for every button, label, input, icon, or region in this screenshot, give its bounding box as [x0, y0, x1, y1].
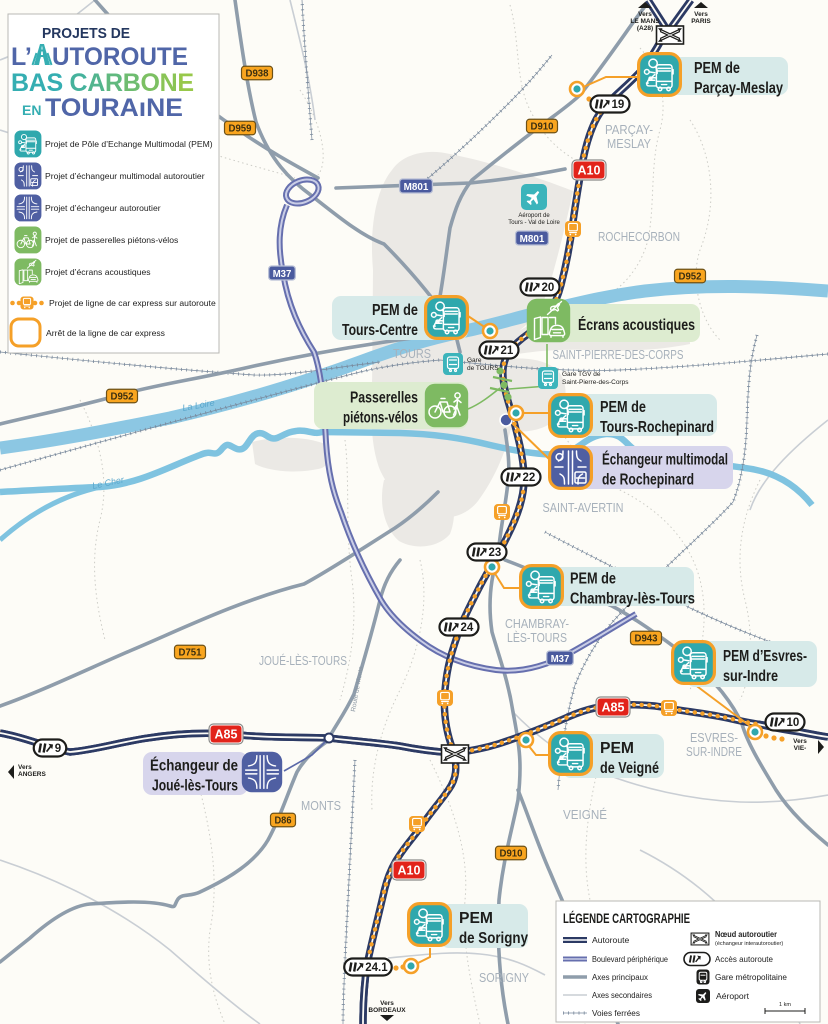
svg-text:Écrans acoustiques: Écrans acoustiques: [578, 315, 695, 334]
svg-text:Voies ferrées: Voies ferrées: [592, 1008, 640, 1018]
svg-text:Axes secondaires: Axes secondaires: [592, 990, 652, 1000]
svg-text:ESVRES-: ESVRES-: [690, 730, 738, 745]
svg-text:sur-Indre: sur-Indre: [723, 668, 778, 685]
svg-text:Projet de ligne de car express: Projet de ligne de car express sur autor…: [49, 298, 216, 308]
svg-text:EN: EN: [22, 102, 41, 118]
svg-text:Projet d’échangeur autoroutier: Projet d’échangeur autoroutier: [45, 203, 161, 213]
svg-text:Échangeur de: Échangeur de: [150, 756, 238, 775]
svg-text:PEM: PEM: [600, 740, 634, 757]
svg-text:Accès autoroute: Accès autoroute: [715, 954, 773, 964]
svg-text:D952: D952: [679, 272, 702, 283]
svg-text:de Sorigny: de Sorigny: [459, 930, 528, 947]
svg-text:A85: A85: [602, 701, 625, 715]
svg-text:D959: D959: [229, 124, 252, 135]
svg-text:Tours-Centre: Tours-Centre: [342, 322, 418, 339]
svg-text:23: 23: [489, 547, 502, 559]
svg-text:PROJETS DE: PROJETS DE: [42, 25, 130, 42]
svg-text:PARIS: PARIS: [691, 18, 711, 25]
svg-text:D910: D910: [531, 122, 554, 133]
svg-text:TOURS: TOURS: [393, 346, 431, 361]
svg-text:Gare métropolitaine: Gare métropolitaine: [715, 972, 787, 982]
svg-text:BORDEAUX: BORDEAUX: [368, 1007, 406, 1014]
svg-text:ANGERS: ANGERS: [18, 771, 46, 778]
svg-text:PEM de: PEM de: [600, 399, 646, 416]
svg-text:20: 20: [542, 282, 555, 294]
svg-text:de Rochepinard: de Rochepinard: [602, 472, 694, 489]
svg-text:PEM de: PEM de: [372, 302, 418, 319]
svg-text:21: 21: [501, 345, 514, 357]
svg-text:A85: A85: [215, 728, 238, 742]
svg-text:A10: A10: [578, 164, 601, 178]
svg-text:Arrêt de la ligne de car expre: Arrêt de la ligne de car express: [46, 328, 165, 338]
svg-text:(échangeur interautoroutier): (échangeur interautoroutier): [715, 941, 783, 947]
svg-text:LÈS-TOURS: LÈS-TOURS: [507, 630, 567, 645]
svg-text:M37: M37: [273, 269, 292, 280]
svg-text:piétons-vélos: piétons-vélos: [343, 410, 418, 427]
svg-text:24.1: 24.1: [365, 962, 388, 974]
svg-text:MESLAY: MESLAY: [607, 136, 651, 151]
svg-text:BAS CARBONE: BAS CARBONE: [11, 69, 194, 97]
svg-text:LE MANS: LE MANS: [630, 18, 660, 25]
svg-text:M801: M801: [404, 182, 429, 193]
svg-text:PEM de: PEM de: [570, 571, 616, 588]
svg-text:de TOURS: de TOURS: [467, 365, 499, 372]
svg-text:Vers: Vers: [380, 1000, 394, 1007]
svg-text:TOURAıNE: TOURAıNE: [45, 94, 183, 122]
svg-text:Vers: Vers: [694, 11, 708, 18]
svg-text:(A28): (A28): [637, 25, 653, 32]
svg-text:LÉGENDE CARTOGRAPHIE: LÉGENDE CARTOGRAPHIE: [563, 911, 690, 926]
svg-text:Tours - Val de Loire: Tours - Val de Loire: [508, 220, 560, 226]
svg-text:D938: D938: [246, 69, 269, 80]
svg-text:SAINT-PIERRE-DES-CORPS: SAINT-PIERRE-DES-CORPS: [553, 347, 684, 362]
svg-text:SORIGNY: SORIGNY: [479, 970, 529, 985]
svg-text:PEM d’Esvres-: PEM d’Esvres-: [723, 648, 807, 665]
svg-text:MONTS: MONTS: [301, 798, 341, 813]
svg-text:Vers: Vers: [793, 738, 807, 745]
svg-text:Axes principaux: Axes principaux: [592, 972, 649, 982]
svg-text:Gare TGV de: Gare TGV de: [562, 371, 601, 378]
svg-text:PEM de: PEM de: [694, 60, 740, 77]
svg-text:SAINT-AVERTIN: SAINT-AVERTIN: [543, 500, 624, 515]
svg-text:1 km: 1 km: [779, 1002, 791, 1008]
svg-text:Autoroute: Autoroute: [592, 935, 629, 945]
svg-text:10: 10: [787, 717, 800, 729]
svg-text:Projet d’écrans acoustiques: Projet d’écrans acoustiques: [45, 267, 151, 277]
svg-text:M37: M37: [551, 654, 570, 665]
svg-text:SUR-INDRE: SUR-INDRE: [686, 744, 742, 759]
svg-text:JOUÉ-LÈS-TOURS: JOUÉ-LÈS-TOURS: [259, 653, 347, 668]
svg-text:Passerelles: Passerelles: [350, 390, 418, 407]
svg-text:Projet d’échangeur multimodal: Projet d’échangeur multimodal autoroutie…: [45, 171, 205, 181]
svg-text:PARÇAY-: PARÇAY-: [605, 122, 653, 137]
svg-text:Vers: Vers: [18, 764, 32, 771]
svg-text:L’: L’: [11, 43, 32, 71]
svg-text:Échangeur multimodal: Échangeur multimodal: [602, 450, 728, 469]
svg-text:D952: D952: [111, 392, 134, 403]
svg-text:Boulevard périphérique: Boulevard périphérique: [592, 954, 668, 964]
svg-text:Aéroport: Aéroport: [716, 991, 750, 1001]
svg-text:PEM: PEM: [459, 910, 493, 927]
svg-text:24: 24: [461, 622, 474, 634]
svg-text:D751: D751: [179, 648, 202, 659]
svg-text:ROCHECORBON: ROCHECORBON: [598, 229, 680, 244]
svg-text:22: 22: [523, 472, 536, 484]
svg-text:Vers: Vers: [638, 11, 652, 18]
svg-text:Projet de Pôle d’Echange Multi: Projet de Pôle d’Echange Multimodal (PEM…: [45, 139, 213, 149]
svg-text:Nœud autoroutier: Nœud autoroutier: [715, 929, 778, 939]
svg-text:VIE-: VIE-: [794, 745, 807, 752]
svg-text:D86: D86: [275, 816, 292, 827]
svg-text:D943: D943: [635, 634, 658, 645]
svg-text:VEIGNÉ: VEIGNÉ: [563, 807, 607, 822]
svg-text:Gare: Gare: [467, 357, 482, 364]
svg-text:A10: A10: [398, 864, 421, 878]
svg-text:19: 19: [612, 99, 625, 111]
svg-text:9: 9: [55, 743, 61, 755]
svg-text:Tours-Rochepinard: Tours-Rochepinard: [600, 419, 714, 436]
svg-text:Joué-lès-Tours: Joué-lès-Tours: [152, 778, 238, 795]
svg-text:Chambray-lès-Tours: Chambray-lès-Tours: [570, 591, 695, 608]
svg-text:de Veigné: de Veigné: [600, 760, 659, 777]
svg-text:Saint-Pierre-des-Corps: Saint-Pierre-des-Corps: [562, 379, 629, 386]
svg-text:Parçay-Meslay: Parçay-Meslay: [694, 80, 783, 97]
svg-text:D910: D910: [500, 849, 523, 860]
svg-text:UTOROUTE: UTOROUTE: [52, 43, 188, 71]
svg-text:Projet de passerelles piétons-: Projet de passerelles piétons-vélos: [45, 235, 178, 245]
svg-text:Aéroport de: Aéroport de: [518, 213, 550, 219]
svg-text:CHAMBRAY-: CHAMBRAY-: [505, 616, 569, 631]
svg-text:M801: M801: [520, 234, 545, 245]
